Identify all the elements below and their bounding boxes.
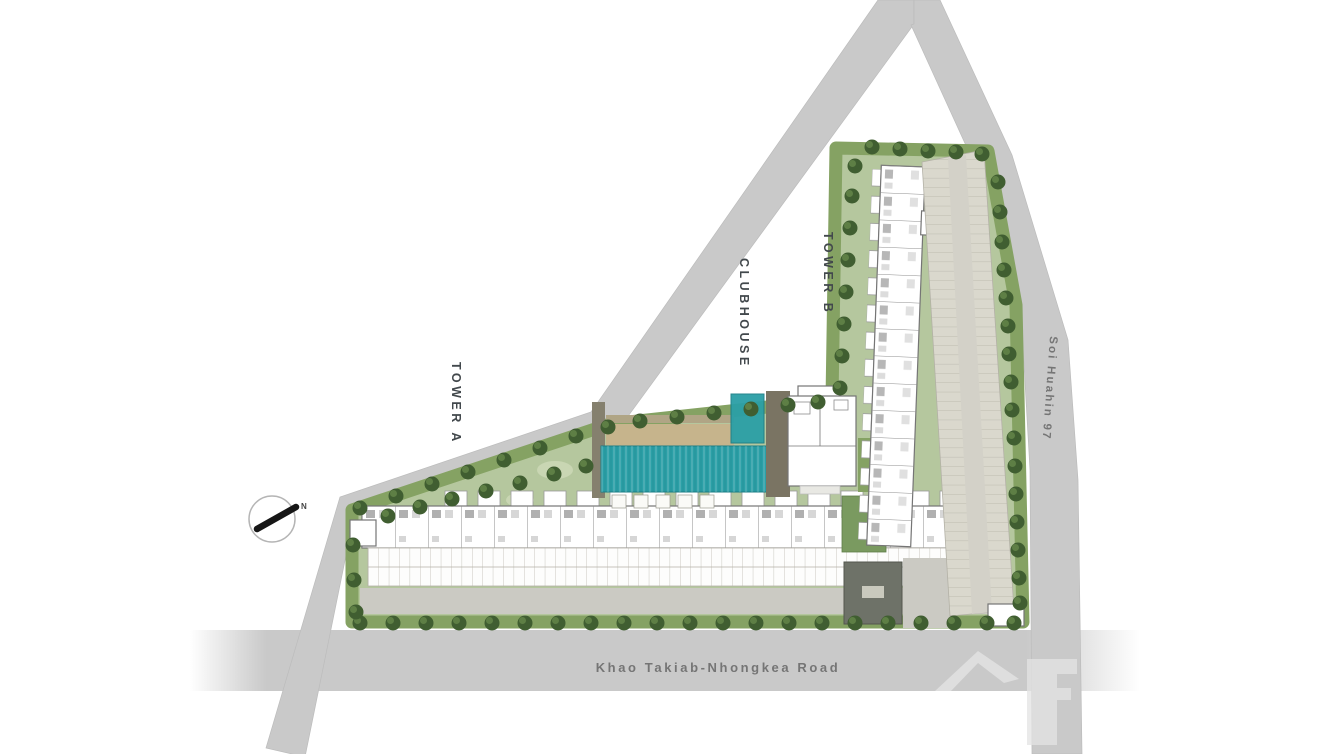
tree-icon [386, 616, 401, 631]
tree-icon [1001, 319, 1016, 334]
tree-icon [1013, 596, 1028, 611]
tree-icon [848, 616, 863, 631]
tree-icon [991, 175, 1006, 190]
sun-deck [606, 424, 734, 447]
tree-icon [1008, 459, 1023, 474]
tree-icon [749, 616, 764, 631]
tree-icon [999, 291, 1014, 306]
tree-icon [1009, 487, 1024, 502]
tree-icon [670, 410, 685, 425]
tree-icon [744, 402, 759, 417]
tree-icon [843, 221, 858, 236]
clubhouse-label: CLUBHOUSE [737, 258, 751, 369]
tree-icon [1012, 571, 1027, 586]
clubhouse-slab [788, 396, 856, 486]
tree-icon [617, 616, 632, 631]
tree-icon [551, 616, 566, 631]
tree-icon [947, 616, 962, 631]
tree-icon [815, 616, 830, 631]
tree-icon [584, 616, 599, 631]
tree-icon [845, 189, 860, 204]
tree-icon [781, 398, 796, 413]
site-plan-svg: Khao Takiab-Nhongkea Road Soi Huahin 97 [0, 0, 1342, 754]
swimming-pool-water-texture [601, 446, 767, 492]
tree-icon [413, 500, 428, 515]
tree-icon [381, 509, 396, 524]
tree-icon [346, 538, 361, 553]
tree-icon [497, 453, 512, 468]
tree-icon [461, 465, 476, 480]
compass-icon: N [249, 496, 307, 542]
tree-icon [716, 616, 731, 631]
tree-icon [921, 144, 936, 159]
tree-icon [1005, 403, 1020, 418]
tree-icon [1002, 347, 1017, 362]
tree-icon [707, 406, 722, 421]
tree-icon [841, 253, 856, 268]
tree-icon [633, 414, 648, 429]
tree-icon [782, 616, 797, 631]
cabana [700, 495, 714, 508]
bottom-road-label: Khao Takiab-Nhongkea Road [596, 660, 841, 675]
tree-icon [837, 317, 852, 332]
tree-icon [419, 616, 434, 631]
tree-icon [980, 616, 995, 631]
tree-icon [839, 285, 854, 300]
tree-icon [579, 459, 594, 474]
tower-a-label: TOWER A [449, 362, 463, 445]
tree-icon [425, 477, 440, 492]
lobby-canopy [862, 586, 884, 598]
tree-icon [452, 616, 467, 631]
tree-icon [1007, 616, 1022, 631]
tree-icon [353, 501, 368, 516]
tree-icon [914, 616, 929, 631]
clubhouse-terrace [800, 486, 840, 494]
tree-icon [975, 147, 990, 162]
tree-icon [547, 467, 562, 482]
tree-icon [601, 420, 616, 435]
cabana [612, 495, 626, 508]
kids-pool [731, 394, 764, 443]
tree-icon [1011, 543, 1026, 558]
tree-icon [865, 140, 880, 155]
tree-icon [848, 159, 863, 174]
tree-icon [811, 395, 826, 410]
tree-icon [485, 616, 500, 631]
tree-icon [995, 235, 1010, 250]
tree-icon [997, 263, 1012, 278]
tree-icon [389, 489, 404, 504]
cabana [678, 495, 692, 508]
tree-icon [833, 381, 848, 396]
compass-north-label: N [301, 502, 307, 511]
tree-icon [683, 616, 698, 631]
tower-b-label: TOWER B [821, 232, 835, 315]
tree-icon [1007, 431, 1022, 446]
tree-icon [893, 142, 908, 157]
tree-icon [650, 616, 665, 631]
tree-icon [533, 441, 548, 456]
tree-icon [835, 349, 850, 364]
tree-icon [569, 429, 584, 444]
tree-icon [513, 476, 528, 491]
tree-icon [949, 145, 964, 160]
cabana [634, 495, 648, 508]
tree-icon [347, 573, 362, 588]
tree-icon [1010, 515, 1025, 530]
tree-icon [1004, 375, 1019, 390]
entrance-driveway [903, 558, 951, 628]
cabana [656, 495, 670, 508]
tree-icon [993, 205, 1008, 220]
tree-icon [881, 616, 896, 631]
tree-icon [349, 605, 364, 620]
tree-icon [518, 616, 533, 631]
tree-icon [445, 492, 460, 507]
site-plan-canvas: Khao Takiab-Nhongkea Road Soi Huahin 97 [0, 0, 1342, 754]
tree-icon [479, 484, 494, 499]
